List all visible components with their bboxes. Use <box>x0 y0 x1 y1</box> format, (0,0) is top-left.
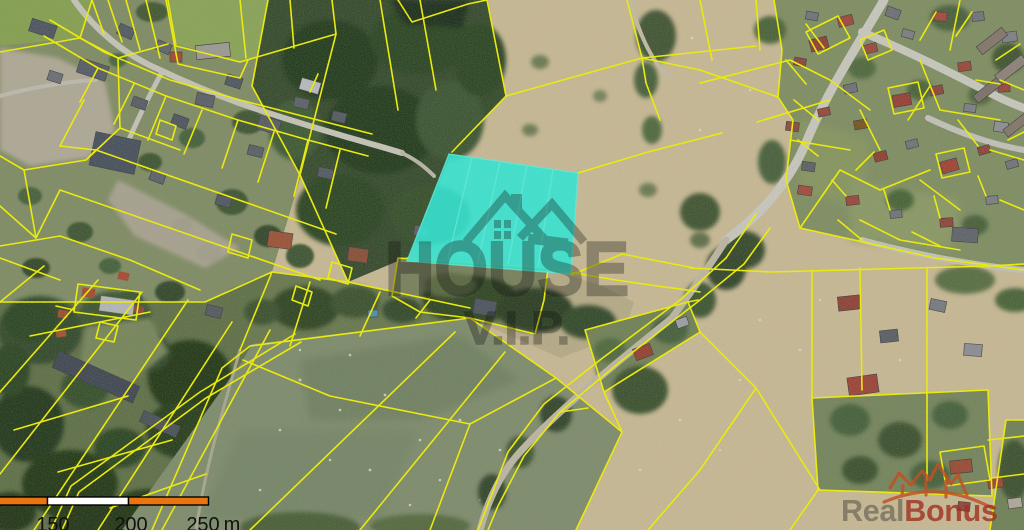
svg-text:HOUSE: HOUSE <box>385 227 629 312</box>
svg-text:150: 150 <box>36 514 69 530</box>
svg-text:RealBonus: RealBonus <box>841 494 998 528</box>
svg-text:V.I.P.: V.I.P. <box>464 302 570 354</box>
svg-text:250: 250 <box>186 514 219 530</box>
svg-text:200: 200 <box>114 514 147 530</box>
svg-text:m: m <box>224 514 241 530</box>
